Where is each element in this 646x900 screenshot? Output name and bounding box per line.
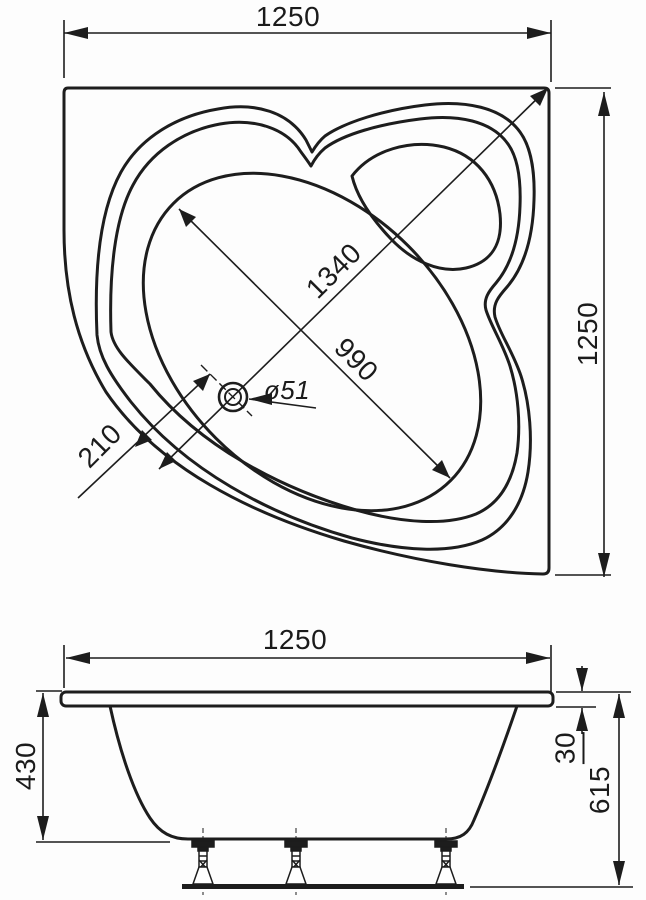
top-height-label: 1250 — [574, 302, 602, 366]
arrow-left — [66, 652, 90, 664]
rim-profile — [61, 692, 553, 706]
arrow-up — [37, 693, 49, 717]
drain-diameter-label: ø51 — [264, 377, 310, 403]
bathtub-technical-drawing: 1250 1250 1340 990 210 ø51 1250 430 30 6… — [0, 0, 646, 900]
arrow-down — [598, 553, 610, 577]
arrow-down — [576, 668, 588, 691]
total-height-label: 615 — [586, 766, 614, 814]
top-width-label: 1250 — [256, 3, 320, 31]
tub-depth-label: 430 — [12, 742, 40, 790]
side-width-label: 1250 — [263, 626, 327, 654]
top-view-dimensions — [64, 20, 611, 577]
top-view — [64, 88, 549, 577]
tub-body-profile — [110, 706, 517, 839]
rim-thickness-label: 30 — [552, 732, 585, 764]
dim-line-bowl-990 — [179, 209, 450, 478]
arrow-left — [64, 27, 88, 39]
arrow-right — [527, 27, 551, 39]
arrow-right — [526, 652, 550, 664]
rim-inner-contour-outer — [96, 103, 534, 549]
arrow-up — [598, 92, 610, 116]
base-plate — [182, 884, 464, 889]
side-view-arrowheads — [37, 652, 625, 885]
arrow-up — [613, 694, 625, 718]
dim-line-diagonal-1340 — [159, 88, 548, 469]
arrow-down — [613, 861, 625, 885]
arrow-up — [576, 708, 588, 731]
side-view — [61, 692, 553, 839]
arrow-down — [37, 816, 49, 840]
arrow-down-left — [135, 430, 152, 447]
